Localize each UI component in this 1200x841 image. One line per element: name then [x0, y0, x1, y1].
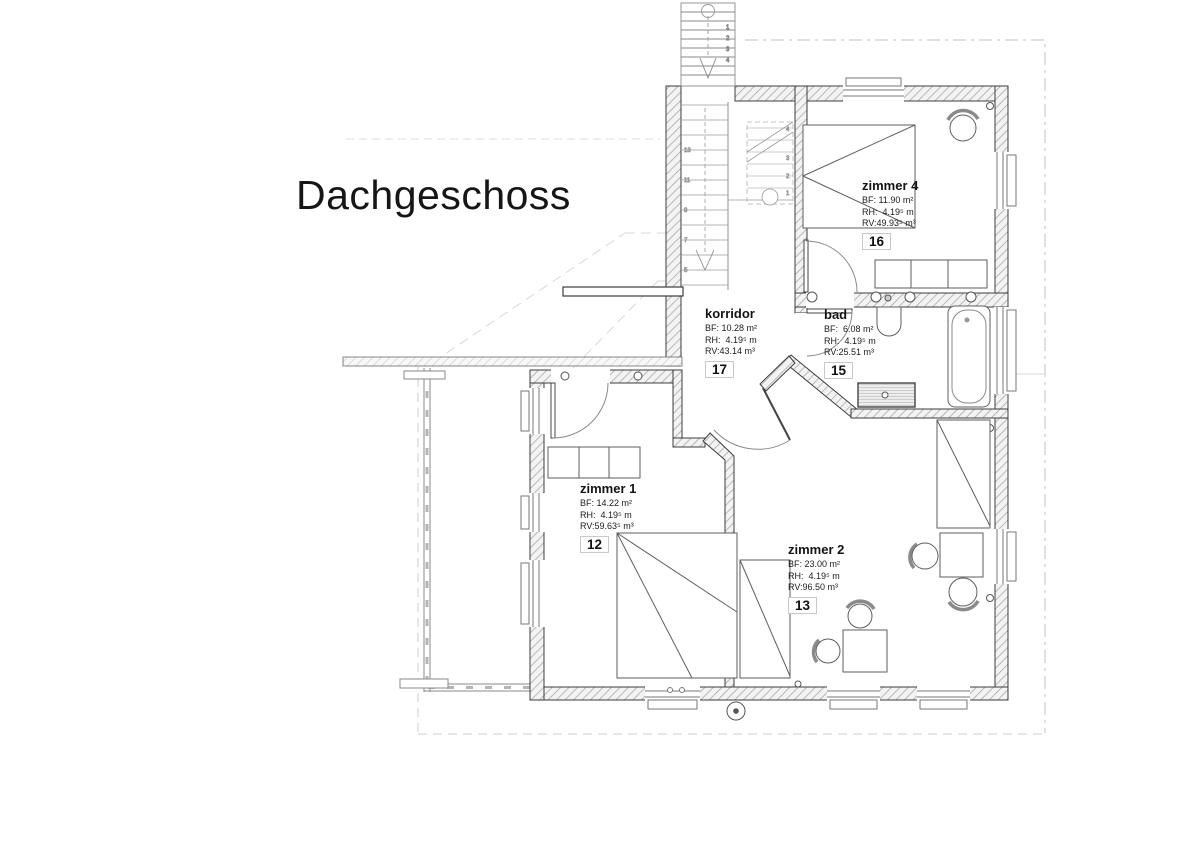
bed-symbol-zimmer1	[617, 533, 737, 678]
room-name: bad	[824, 307, 876, 322]
room-name: korridor	[705, 306, 757, 321]
window-north	[843, 78, 904, 102]
room-area: BF: 23.00 m²	[788, 559, 844, 571]
room-label-zimmer1: zimmer 1 BF: 14.22 m² RH: 4.19⁵ m RV:59.…	[580, 481, 636, 554]
desk-zimmer2	[940, 533, 983, 577]
room-area: BF: 6.08 m²	[824, 324, 876, 336]
room-volume: RV:43.14 m³	[705, 346, 757, 358]
room-volume: RV:25.51 m³	[824, 347, 876, 359]
window-south-3	[917, 686, 970, 709]
room-height: RH: 4.19⁵ m	[788, 571, 844, 583]
window-west-1	[521, 388, 545, 434]
room-volume: RV:49.93⁵ m³	[862, 218, 918, 230]
window-south-2	[827, 686, 880, 709]
window-east-2	[994, 307, 1016, 394]
svg-text:9: 9	[684, 208, 688, 214]
svg-text:2: 2	[786, 174, 790, 180]
room-name: zimmer 1	[580, 481, 636, 496]
window-east-1	[994, 152, 1016, 209]
room-volume: RV:96.50 m³	[788, 582, 844, 594]
room-name: zimmer 4	[862, 178, 918, 193]
chair-symbol-desk	[910, 543, 938, 569]
survey-marker	[727, 702, 745, 720]
room-height: RH: 4.19⁵ m	[862, 207, 918, 219]
doors	[551, 240, 857, 449]
room-number-badge: 13	[788, 597, 817, 614]
floor-plan-canvas: 1 2 3 4 13 11 9 7 5 4 3 2 1	[0, 0, 1200, 841]
room-height: RH: 4.19⁵ m	[580, 510, 636, 522]
room-height: RH: 4.19⁵ m	[705, 335, 757, 347]
svg-text:5: 5	[684, 268, 688, 274]
room-height: RH: 4.19⁵ m	[824, 336, 876, 348]
toilet-bad	[877, 307, 901, 336]
room-area: BF: 14.22 m²	[580, 498, 636, 510]
bathtub-bad	[948, 306, 990, 407]
chair-symbol-zimmer4	[948, 110, 978, 141]
room-number-badge: 17	[705, 361, 734, 378]
room-name: zimmer 2	[788, 542, 844, 557]
window-south-1	[645, 686, 700, 709]
svg-text:13: 13	[684, 148, 691, 154]
svg-text:1: 1	[786, 191, 790, 197]
svg-text:11: 11	[684, 178, 691, 184]
window-west-3	[521, 560, 545, 627]
room-label-korridor: korridor BF: 10.28 m² RH: 4.19⁵ m RV:43.…	[705, 306, 757, 379]
floor-plan-drawing: 1 2 3 4 13 11 9 7 5 4 3 2 1	[0, 0, 1200, 841]
chair-symbol-below-desk	[949, 578, 978, 610]
balcony-railing	[400, 368, 533, 692]
sideboard-zimmer4	[875, 260, 987, 288]
door-zimmer1	[551, 383, 608, 438]
room-area: BF: 11.90 m²	[862, 195, 918, 207]
svg-text:3: 3	[786, 156, 790, 162]
door-zimmer4	[804, 240, 857, 292]
room-label-zimmer2: zimmer 2 BF: 23.00 m² RH: 4.19⁵ m RV:96.…	[788, 542, 844, 615]
room-number-badge: 12	[580, 536, 609, 553]
room-label-zimmer4: zimmer 4 BF: 11.90 m² RH: 4.19⁵ m RV:49.…	[862, 178, 918, 251]
room-number-badge: 16	[862, 233, 891, 250]
room-area: BF: 10.28 m²	[705, 323, 757, 335]
page-title: Dachgeschoss	[296, 172, 571, 219]
door-zimmer2	[714, 388, 790, 449]
shower-bad	[858, 383, 915, 407]
beam-line	[563, 287, 683, 296]
room-label-bad: bad BF: 6.08 m² RH: 4.19⁵ m RV:25.51 m³ …	[824, 307, 876, 380]
window-east-3	[994, 529, 1016, 584]
room-number-badge: 15	[824, 362, 853, 379]
exterior-stair: 1 2 3 4	[681, 3, 735, 86]
room-volume: RV:59.63⁵ m³	[580, 521, 636, 533]
interior-stair: 13 11 9 7 5 4 3 2 1	[682, 102, 793, 290]
chair-symbol-table-left	[814, 639, 840, 663]
wardrobe-zimmer1	[548, 447, 640, 478]
bed-symbol-zimmer2-left	[740, 560, 790, 678]
window-west-2	[521, 493, 545, 532]
table-zimmer2	[843, 630, 887, 672]
svg-text:7: 7	[684, 238, 688, 244]
bed-symbol-zimmer2-right	[937, 420, 990, 528]
chair-symbol-table-top	[847, 601, 874, 628]
